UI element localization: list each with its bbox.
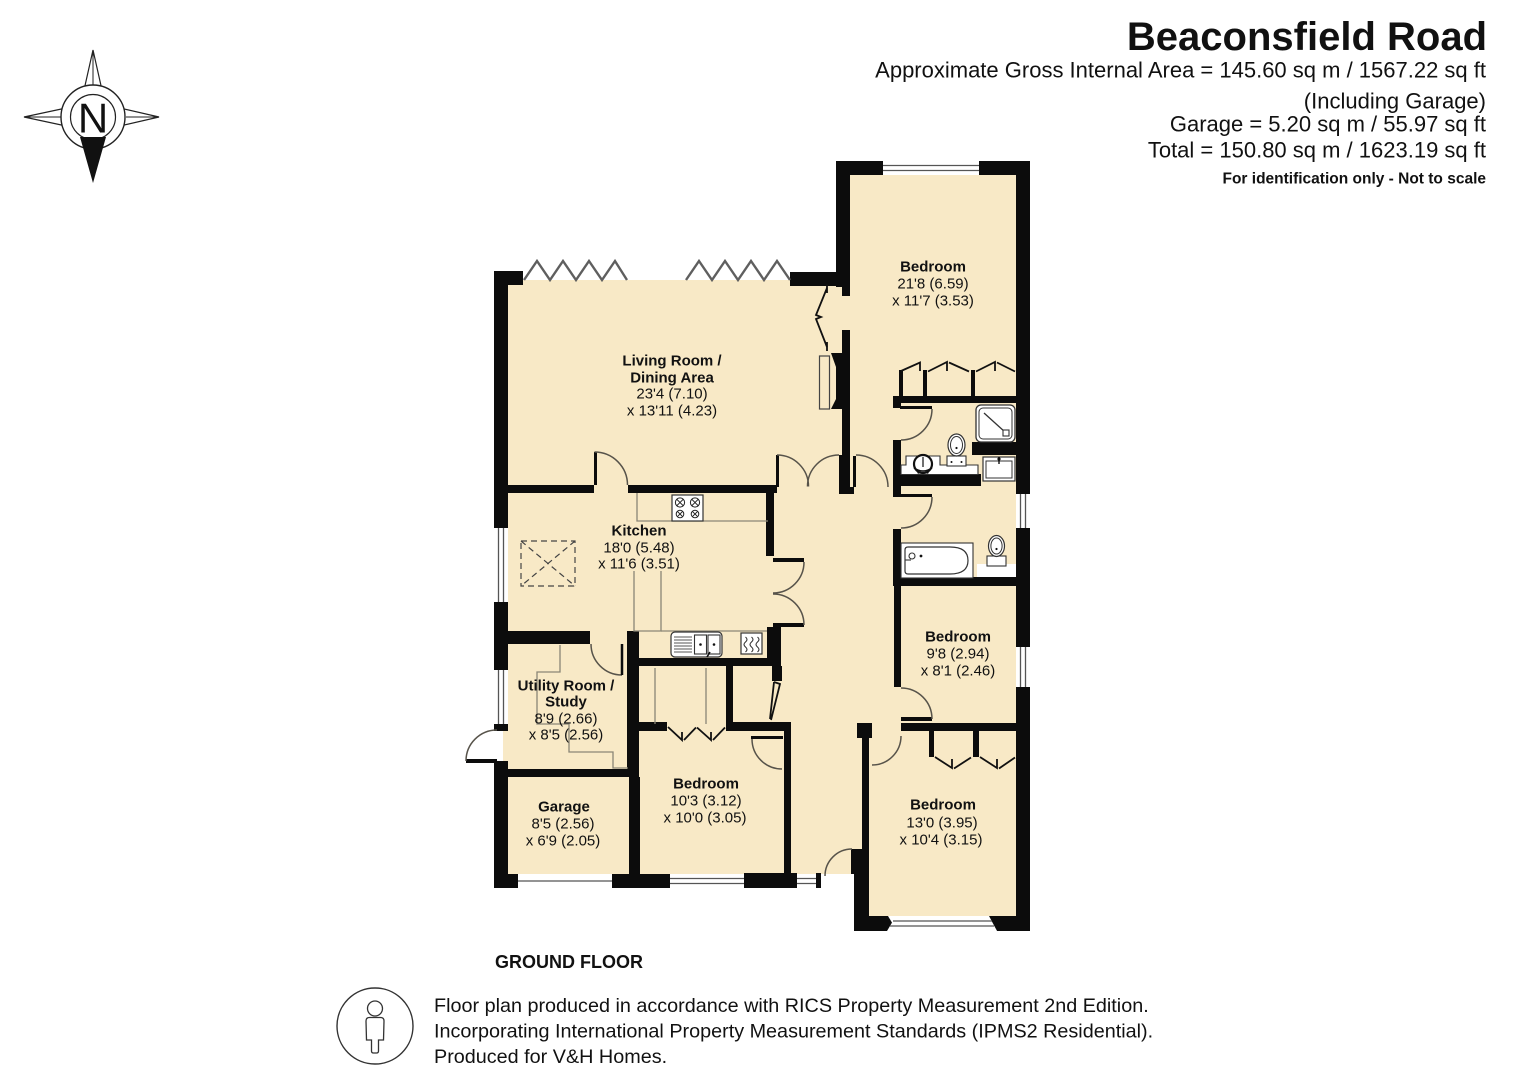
svg-text:x 10'0 (3.05): x 10'0 (3.05)	[664, 810, 747, 827]
svg-text:x 10'4 (3.15): x 10'4 (3.15)	[900, 832, 983, 849]
svg-text:Beaconsfield Road: Beaconsfield Road	[1127, 15, 1487, 59]
svg-text:Total = 150.80 sq m / 1623.19: Total = 150.80 sq m / 1623.19 sq ft	[1148, 138, 1486, 163]
svg-text:13'0 (3.95): 13'0 (3.95)	[906, 815, 977, 832]
svg-text:N: N	[78, 95, 108, 142]
svg-text:GROUND FLOOR: GROUND FLOOR	[495, 952, 643, 972]
svg-text:21'8 (6.59): 21'8 (6.59)	[897, 276, 968, 293]
svg-text:23'4 (7.10): 23'4 (7.10)	[636, 386, 707, 403]
svg-text:Bedroom: Bedroom	[910, 797, 976, 814]
svg-text:Bedroom: Bedroom	[673, 776, 739, 793]
svg-text:Dining Area: Dining Area	[630, 370, 714, 387]
svg-text:Floor plan produced in accorda: Floor plan produced in accordance with R…	[434, 995, 1149, 1017]
svg-text:Bedroom: Bedroom	[900, 259, 966, 276]
svg-text:Incorporating International Pr: Incorporating International Property Mea…	[434, 1021, 1153, 1043]
svg-text:Garage = 5.20 sq m / 55.97 sq: Garage = 5.20 sq m / 55.97 sq ft	[1170, 112, 1486, 137]
svg-text:(Including Garage): (Including Garage)	[1304, 89, 1486, 114]
svg-text:Utility Room /: Utility Room /	[518, 678, 615, 695]
svg-text:8'9 (2.66): 8'9 (2.66)	[535, 711, 598, 728]
svg-text:x 11'7 (3.53): x 11'7 (3.53)	[892, 293, 974, 310]
svg-text:Garage: Garage	[538, 799, 590, 816]
svg-text:x 8'5 (2.56): x 8'5 (2.56)	[529, 727, 604, 744]
svg-text:9'8 (2.94): 9'8 (2.94)	[927, 646, 990, 663]
svg-text:x 11'6 (3.51): x 11'6 (3.51)	[598, 556, 680, 573]
svg-text:10'3 (3.12): 10'3 (3.12)	[670, 793, 741, 810]
svg-text:8'5 (2.56): 8'5 (2.56)	[532, 816, 595, 833]
svg-text:x 6'9 (2.05): x 6'9 (2.05)	[526, 833, 601, 850]
svg-text:Produced for V&H Homes.: Produced for V&H Homes.	[434, 1046, 667, 1068]
svg-text:18'0 (5.48): 18'0 (5.48)	[603, 540, 674, 557]
svg-text:For identification only - Not: For identification only - Not to scale	[1222, 171, 1486, 188]
svg-text:x 13'11 (4.23): x 13'11 (4.23)	[627, 403, 717, 420]
svg-text:Living Room /: Living Room /	[622, 353, 722, 370]
svg-text:Kitchen: Kitchen	[611, 523, 666, 540]
svg-text:Approximate Gross Internal Are: Approximate Gross Internal Area = 145.60…	[875, 58, 1486, 83]
svg-text:Bedroom: Bedroom	[925, 629, 991, 646]
svg-text:Study: Study	[545, 694, 587, 711]
svg-text:x 8'1 (2.46): x 8'1 (2.46)	[921, 663, 996, 680]
